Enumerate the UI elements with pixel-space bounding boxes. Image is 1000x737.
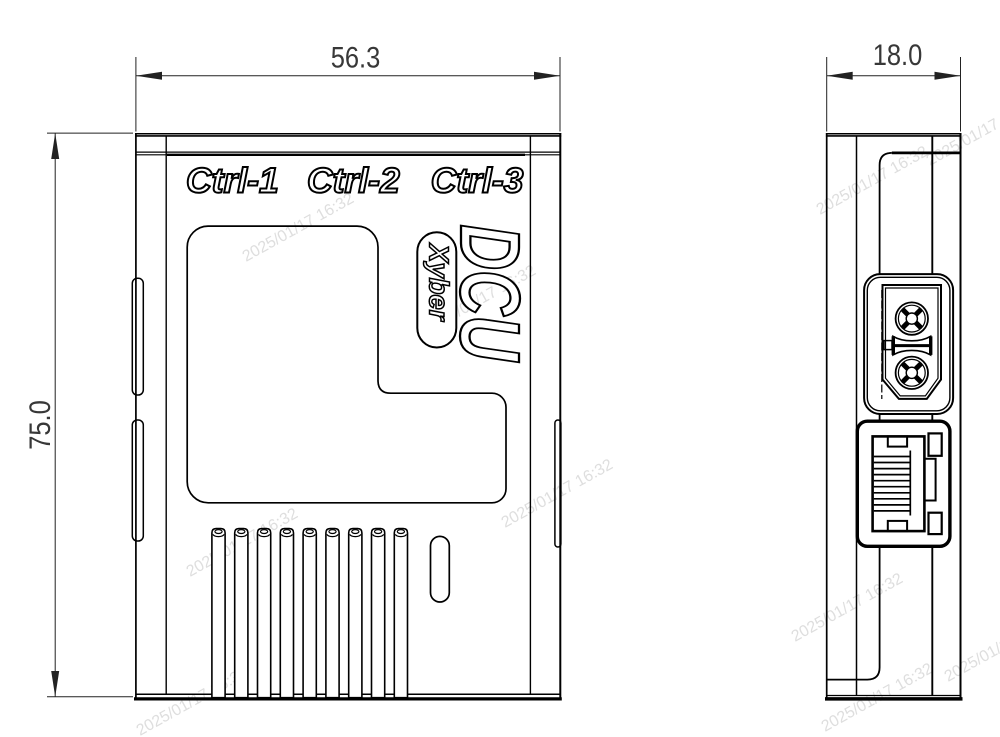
svg-text:75.0: 75.0 (23, 400, 56, 450)
svg-text:Ctrl-2: Ctrl-2 (307, 160, 400, 200)
svg-text:56.3: 56.3 (331, 41, 381, 74)
svg-text:DCU: DCU (443, 225, 537, 363)
svg-text:Ctrl-1: Ctrl-1 (186, 160, 279, 200)
svg-text:Ctrl-3: Ctrl-3 (431, 160, 524, 200)
svg-text:18.0: 18.0 (873, 38, 923, 71)
